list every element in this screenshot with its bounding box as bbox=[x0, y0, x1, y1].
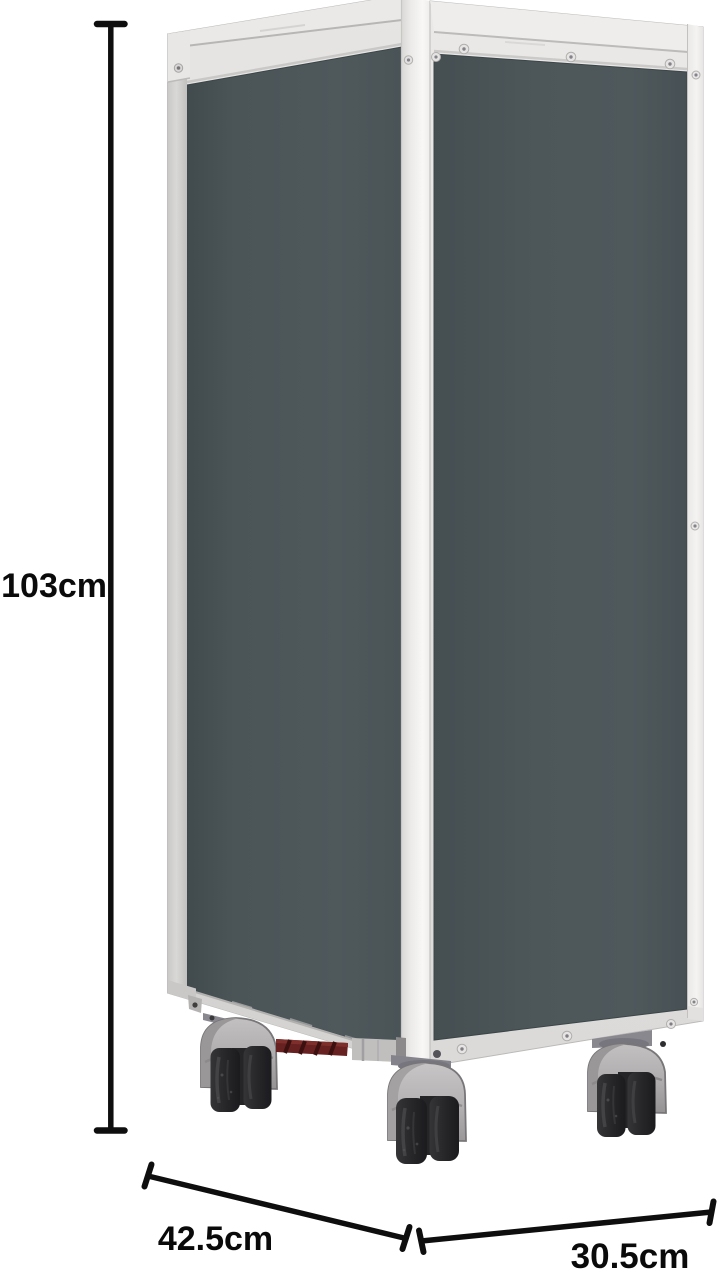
svg-text:103cm: 103cm bbox=[1, 567, 107, 605]
svg-text:42.5cm: 42.5cm bbox=[158, 1220, 273, 1258]
svg-text:30.5cm: 30.5cm bbox=[571, 1237, 690, 1272]
